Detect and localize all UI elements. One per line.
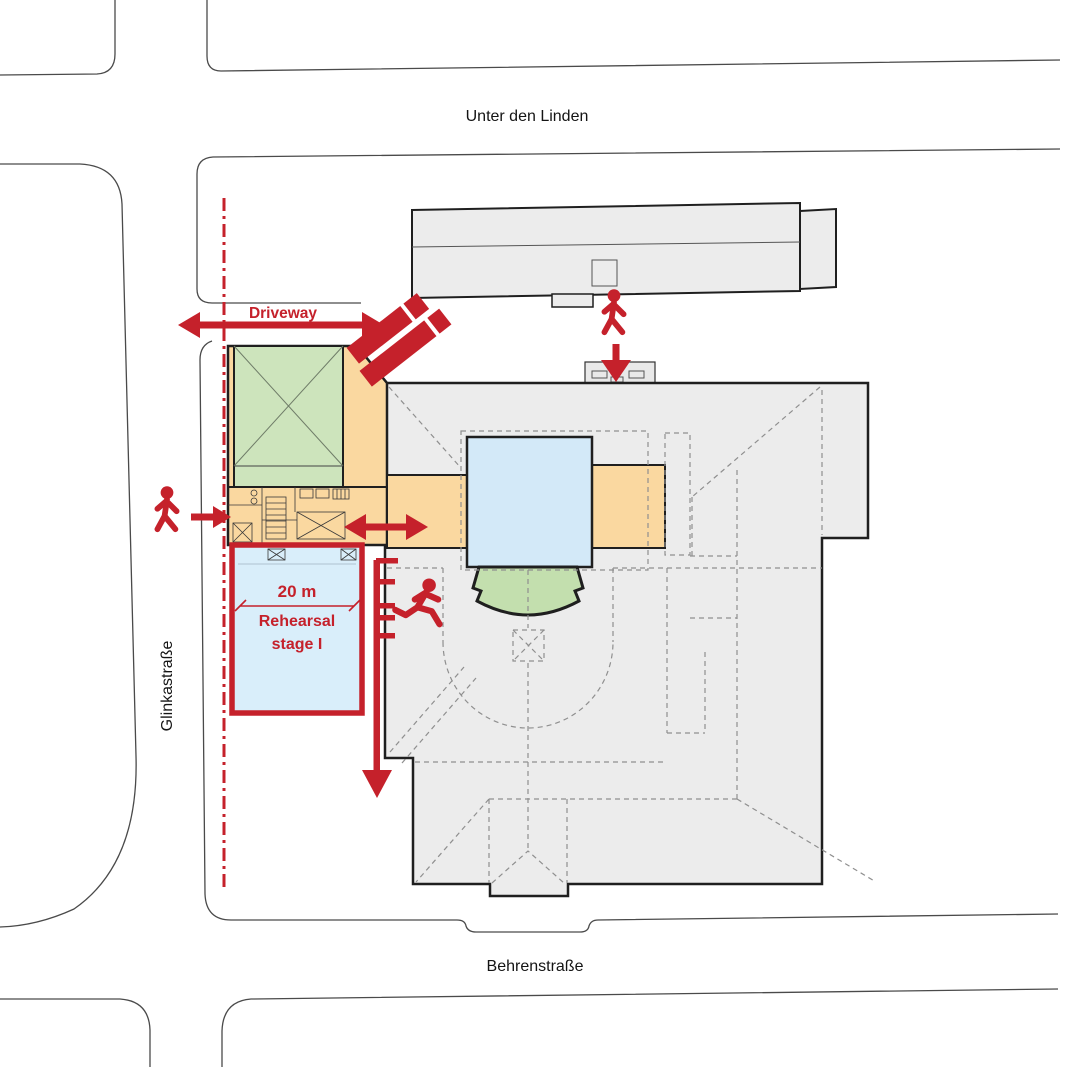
- arrow-left-icon: [178, 312, 200, 338]
- north-building-footprint: [412, 203, 800, 298]
- left-annex: [228, 346, 387, 545]
- dimension-label: 20 m: [278, 582, 317, 601]
- arrow-shaft: [360, 524, 412, 531]
- main-building-footprint: [385, 383, 868, 896]
- arrow-shaft: [191, 514, 216, 521]
- north-building: [412, 203, 836, 307]
- arrow-down-icon: [362, 770, 392, 798]
- escape-arrow-shaft: [374, 560, 381, 774]
- street-curb: [207, 0, 1060, 71]
- site-plan-canvas: 20 m Rehearsal stage I Driveway: [0, 0, 1080, 1067]
- north-building-annex: [800, 209, 836, 289]
- rehearsal-label-line1: Rehearsal: [259, 613, 336, 630]
- driveway-annotation: Driveway: [178, 305, 384, 338]
- street-curb: [0, 999, 150, 1067]
- rehearsal-label-line2: stage I: [272, 636, 323, 653]
- pedestrian-icon: [604, 289, 623, 332]
- pedestrian-entrance-west: [157, 486, 231, 529]
- main-stage: [467, 437, 592, 567]
- street-label-west: Glinkastraße: [159, 641, 176, 732]
- street-label-south: Behrenstraße: [487, 958, 584, 975]
- driveway-label: Driveway: [249, 305, 317, 322]
- driveway-arrow-shaft: [196, 322, 366, 329]
- street-label-north: Unter den Linden: [466, 108, 589, 125]
- street-curb: [222, 989, 1058, 1067]
- rehearsal-stage: 20 m Rehearsal stage I: [232, 545, 362, 713]
- side-stage-west: [387, 475, 467, 548]
- north-building-notch: [552, 294, 593, 307]
- side-stage-east: [592, 465, 665, 548]
- street-curb: [0, 0, 115, 75]
- street-curb: [0, 164, 136, 927]
- pedestrian-icon: [157, 486, 176, 529]
